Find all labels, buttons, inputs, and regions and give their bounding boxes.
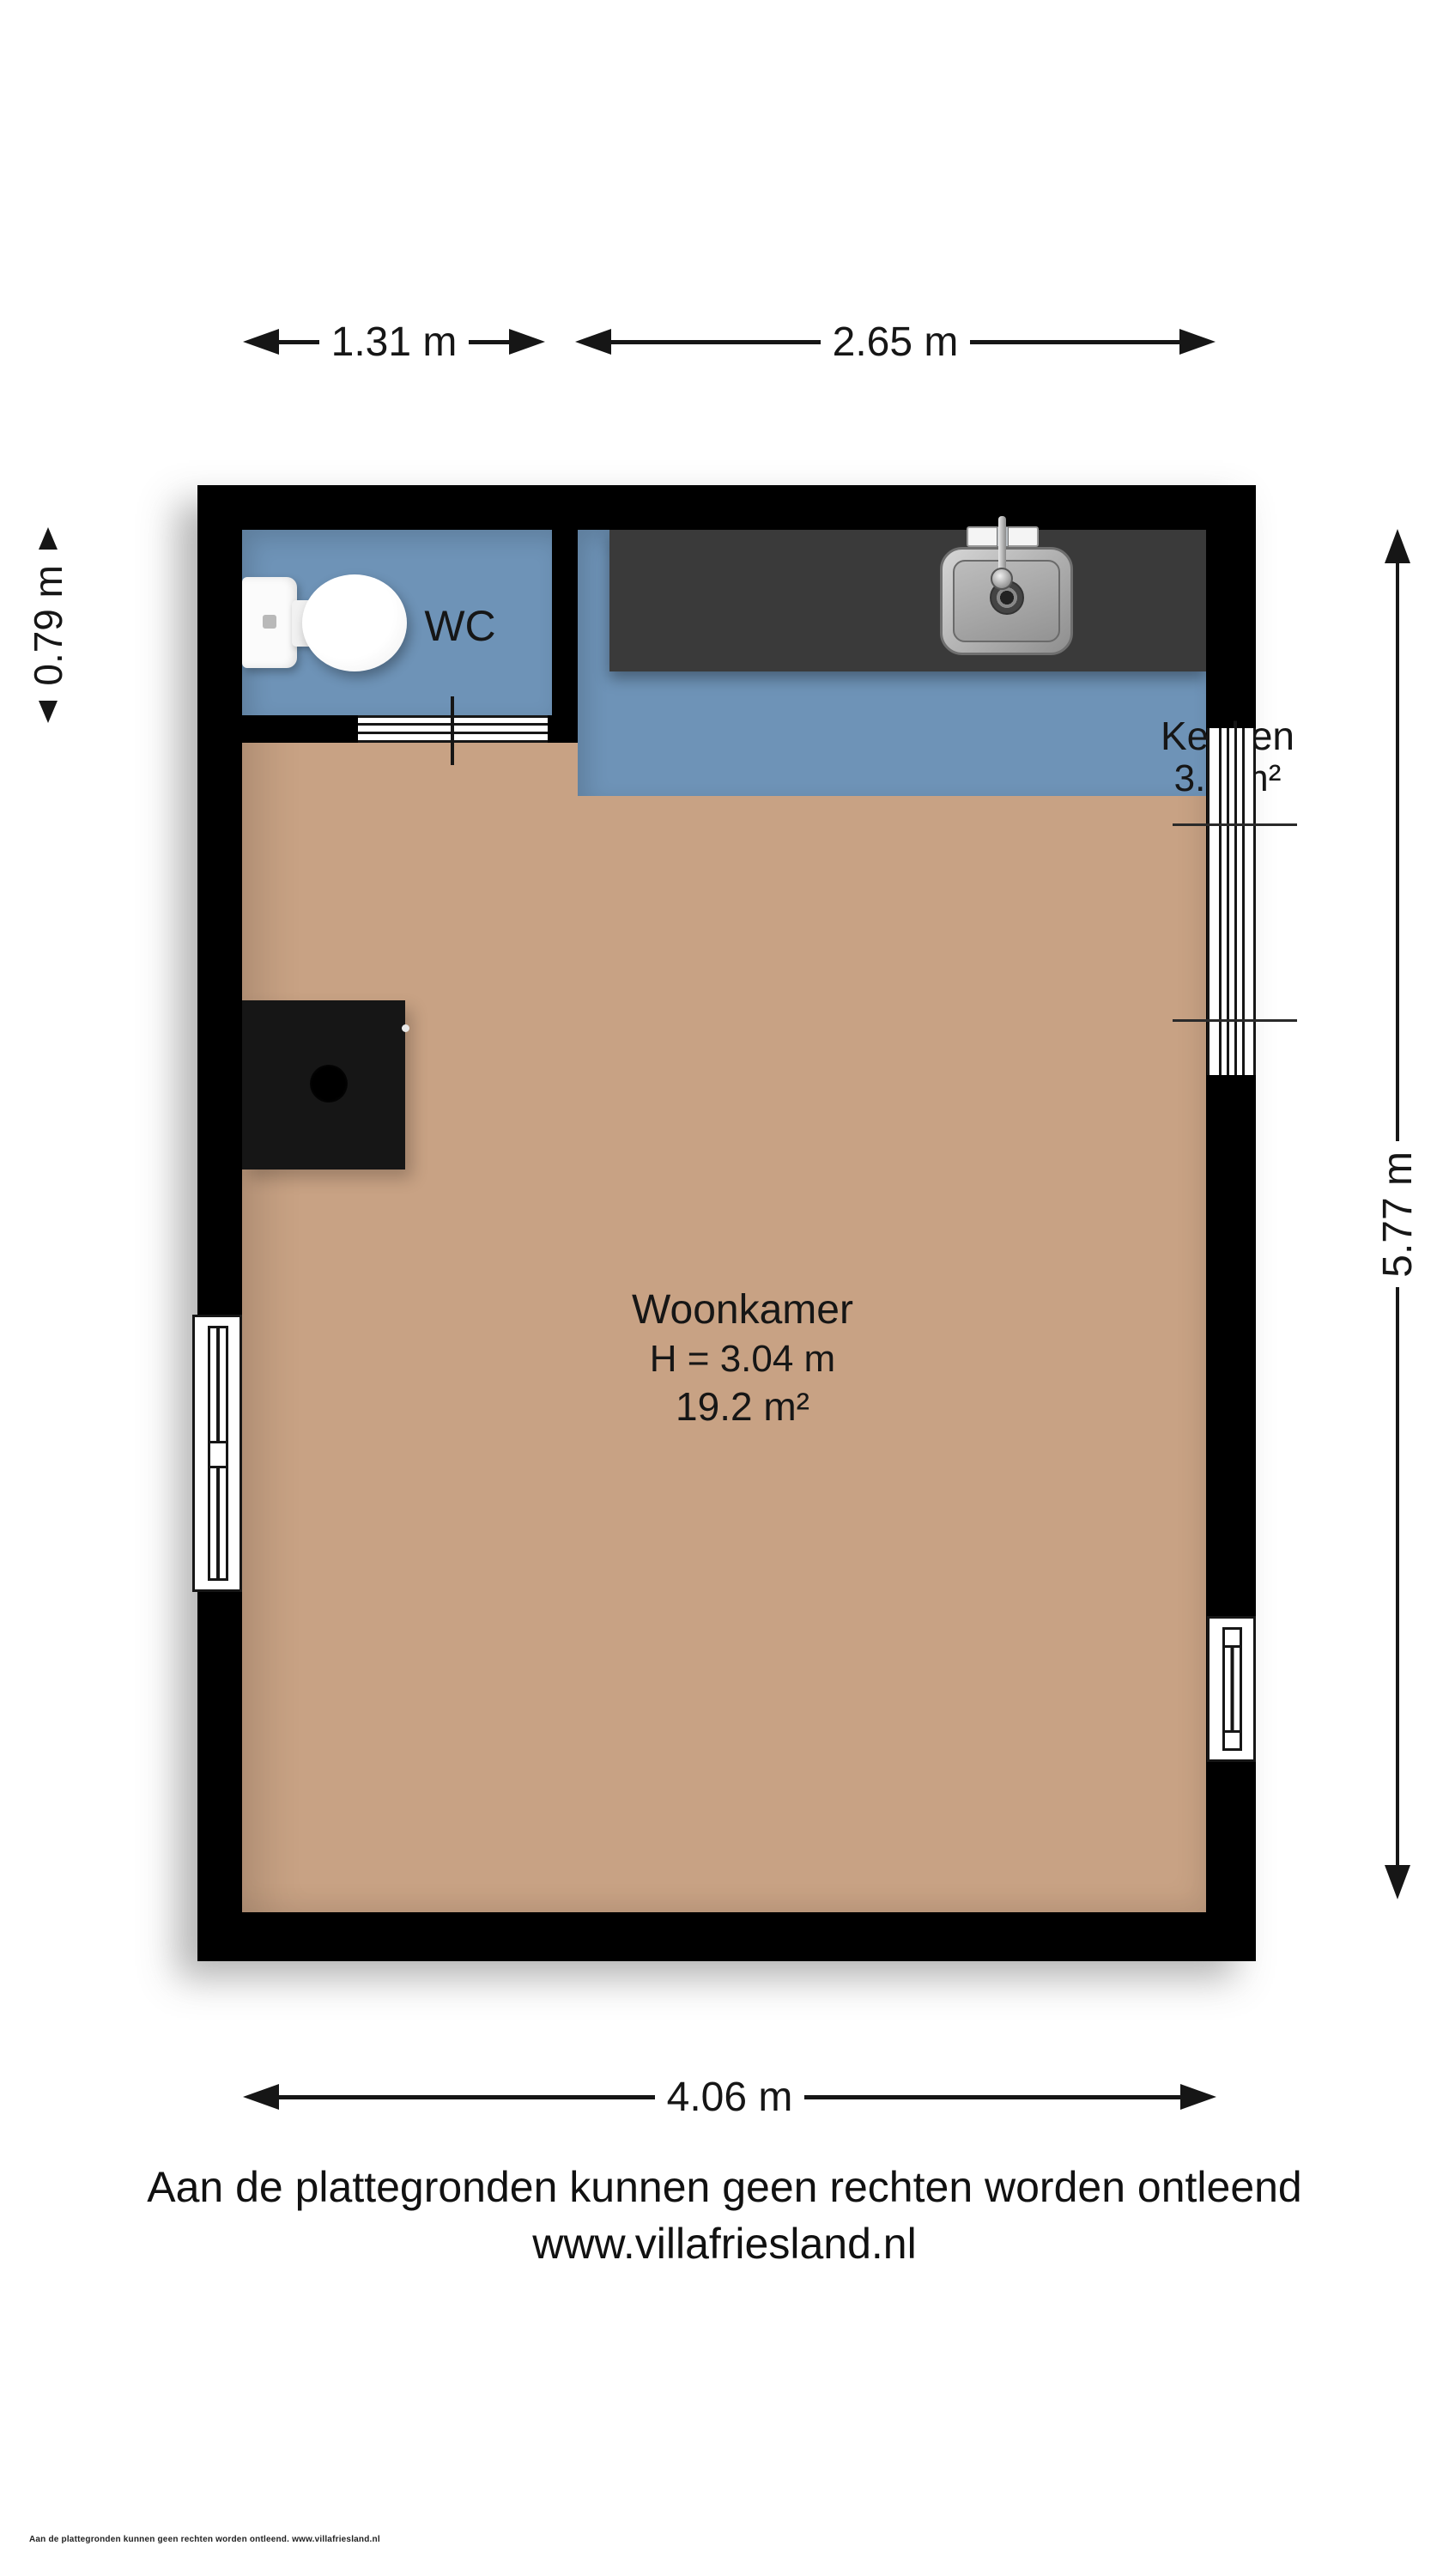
stove-dot	[402, 1024, 409, 1032]
arrow-left-icon	[575, 329, 611, 355]
floor-plan: WC Keuken 3.0 m²	[197, 485, 1256, 1961]
room-label-wc: WC	[424, 601, 495, 651]
faucet-knob	[991, 568, 1013, 590]
disclaimer-text: Aan de plattegronden kunnen geen rechten…	[0, 2159, 1449, 2215]
wall-segment	[552, 530, 578, 743]
kitchen-counter	[609, 530, 1206, 671]
dimension-label: 4.06 m	[655, 2074, 805, 2121]
dimension-keuken-width: 2.65 m	[575, 316, 1216, 368]
dimension-wc-height: 0.79 m	[22, 527, 74, 723]
window-extension-line	[1173, 823, 1297, 826]
arrow-down-icon	[1385, 1865, 1410, 1899]
woonkamer-area: 19.2 m²	[632, 1383, 853, 1430]
stove-flue-icon	[310, 1065, 348, 1103]
dimension-label: 5.77 m	[1374, 1141, 1422, 1288]
arrow-down-icon	[39, 701, 58, 723]
dimension-line	[279, 340, 319, 344]
dimension-line	[1396, 563, 1399, 1141]
window-glass-line	[1227, 728, 1229, 1075]
woonkamer-name: Woonkamer	[632, 1285, 853, 1335]
dimension-right-height: 5.77 m	[1372, 529, 1423, 1899]
dimension-line	[804, 2095, 1180, 2099]
dimension-line	[970, 340, 1179, 344]
woonkamer-ceiling-height: H = 3.04 m	[632, 1335, 853, 1383]
dimension-line	[469, 340, 509, 344]
kitchen-sink-icon	[940, 547, 1073, 655]
window-glass-line	[1219, 728, 1222, 1075]
arrow-left-icon	[243, 329, 279, 355]
dimension-label: 2.65 m	[821, 319, 971, 366]
arrow-right-icon	[1180, 2084, 1216, 2110]
dimension-line	[1396, 1287, 1399, 1865]
woonkamer-floor: WC Keuken 3.0 m²	[242, 530, 1206, 1912]
toilet-flush-button-icon	[263, 615, 276, 629]
toilet-bowl-icon	[302, 574, 407, 671]
arrow-up-icon	[1385, 529, 1410, 563]
window-divider	[208, 1441, 228, 1468]
arrow-right-icon	[509, 329, 545, 355]
dimension-wc-width: 1.31 m	[243, 316, 545, 368]
room-label-woonkamer: Woonkamer H = 3.04 m 19.2 m²	[632, 1285, 853, 1430]
window-cap	[1222, 1730, 1242, 1751]
arrow-right-icon	[1179, 329, 1216, 355]
window-glass-line	[1234, 728, 1237, 1075]
window-right-lower-icon	[1207, 1616, 1256, 1762]
dimension-label: 0.79 m	[25, 555, 71, 696]
dimension-bottom-width: 4.06 m	[243, 2071, 1216, 2123]
website-text: www.villafriesland.nl	[0, 2215, 1449, 2272]
dimension-line	[611, 340, 821, 344]
fine-print: Aan de plattegronden kunnen geen rechten…	[29, 2535, 380, 2544]
window-glass-line	[1242, 728, 1245, 1075]
stove-icon	[242, 1000, 405, 1170]
dimension-line	[279, 2095, 655, 2099]
arrow-left-icon	[243, 2084, 279, 2110]
room-wc: WC	[242, 530, 552, 715]
arrow-up-icon	[39, 527, 58, 550]
window-left-icon	[192, 1315, 242, 1592]
window-cap	[1222, 1627, 1242, 1648]
door-marker-line	[451, 696, 454, 765]
toilet-icon	[242, 577, 297, 668]
dimension-label: 1.31 m	[319, 319, 470, 366]
window-right-upper-icon	[1207, 728, 1256, 1075]
footer-disclaimer: Aan de plattegronden kunnen geen rechten…	[0, 2159, 1449, 2272]
window-extension-line	[1173, 1019, 1297, 1022]
